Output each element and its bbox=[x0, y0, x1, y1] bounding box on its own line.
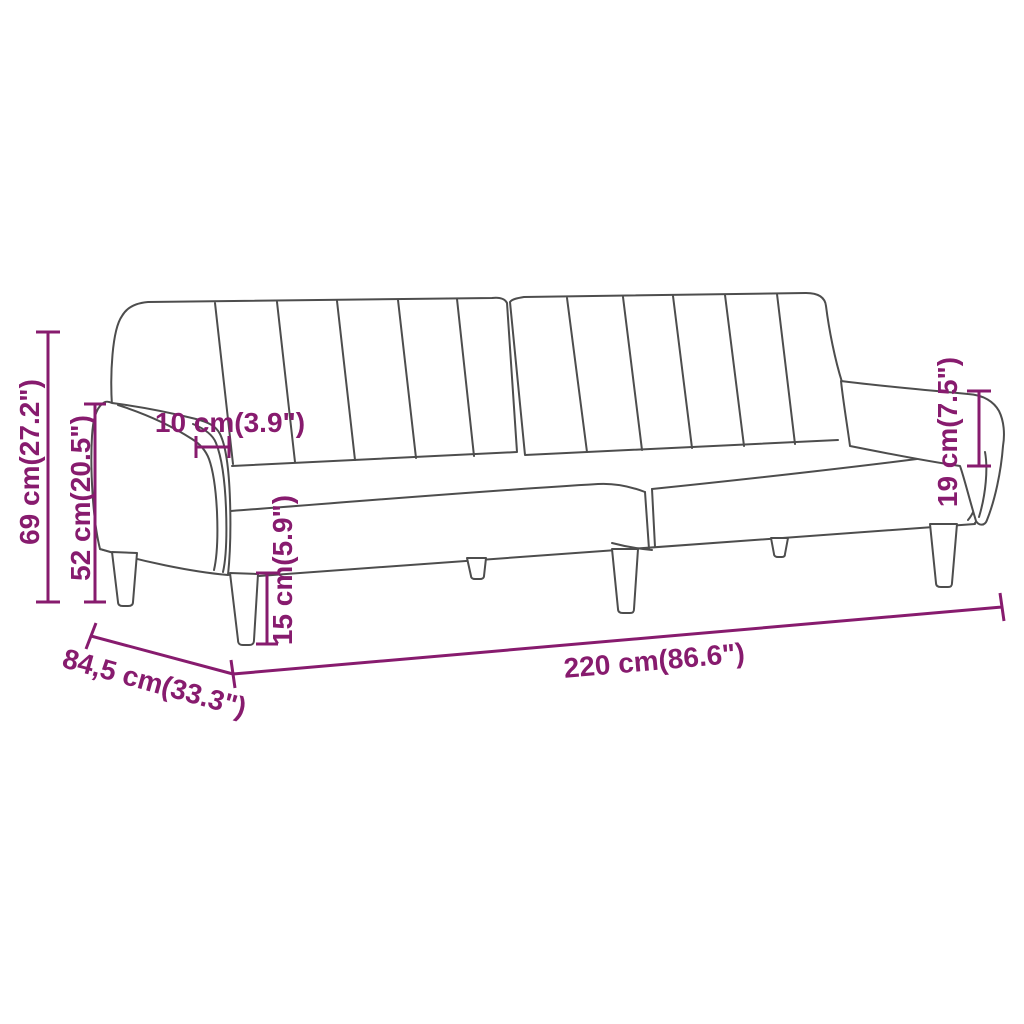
sofa-line-art bbox=[91, 293, 1004, 645]
seat-top-edges bbox=[231, 447, 975, 511]
dimension-diagram-canvas: 69 cm(27.2") 52 cm(20.5") 10 cm(3.9") 15… bbox=[0, 0, 1024, 1024]
sofa-dimension-diagram: 69 cm(27.2") 52 cm(20.5") 10 cm(3.9") 15… bbox=[0, 0, 1024, 1024]
leg-front-right bbox=[930, 524, 957, 587]
dim-label-depth: 84,5 cm(33.3") bbox=[59, 643, 250, 723]
leg-front-left bbox=[230, 573, 258, 645]
backrest-left-channel-seams bbox=[215, 299, 474, 464]
sofa-backrest-right bbox=[510, 293, 842, 455]
leg-back-left bbox=[112, 552, 137, 606]
leg-front-middle bbox=[612, 549, 638, 613]
leg-back-right bbox=[771, 538, 788, 557]
dim-label-armrest-above-seat: 19 cm(7.5") bbox=[932, 357, 963, 507]
dim-label-back-height: 52 cm(20.5") bbox=[65, 415, 96, 581]
dim-label-total-height: 69 cm(27.2") bbox=[14, 379, 45, 545]
sofa-legs bbox=[112, 524, 957, 645]
backrest-right-channel-seams bbox=[567, 294, 795, 452]
dim-label-leg-height: 15 cm(5.9") bbox=[267, 495, 298, 645]
seat-split-seam bbox=[612, 489, 655, 550]
dim-label-armrest-width: 10 cm(3.9") bbox=[155, 407, 305, 438]
leg-back-middle bbox=[467, 558, 486, 579]
